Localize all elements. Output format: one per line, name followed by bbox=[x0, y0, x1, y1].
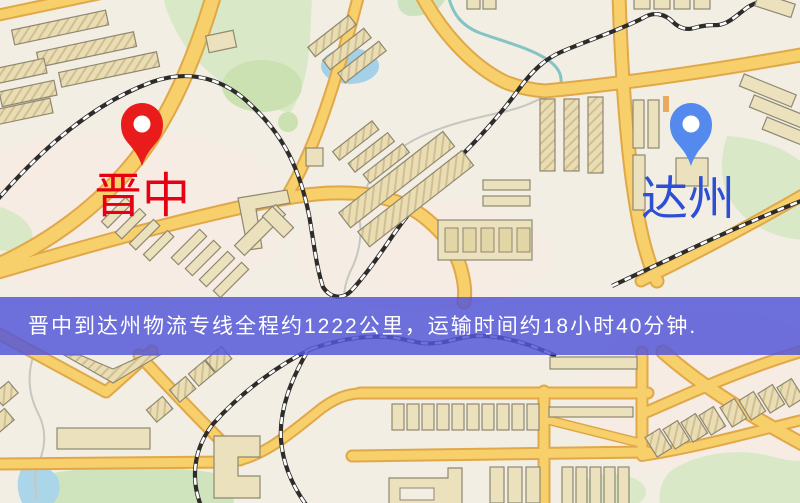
destination-label: 达州 bbox=[641, 177, 735, 224]
origin-label: 晋中 bbox=[94, 173, 190, 221]
route-info-banner: 晋中到达州物流专线全程约1222公里，运输时间约18小时40分钟. bbox=[0, 297, 800, 355]
map-background bbox=[0, 0, 800, 503]
map-image: 晋中 达州 晋中到达州物流专线全程约1222公里，运输时间约18小时40分钟. bbox=[0, 0, 800, 503]
route-info-text: 晋中到达州物流专线全程约1222公里，运输时间约18小时40分钟. bbox=[0, 316, 697, 337]
